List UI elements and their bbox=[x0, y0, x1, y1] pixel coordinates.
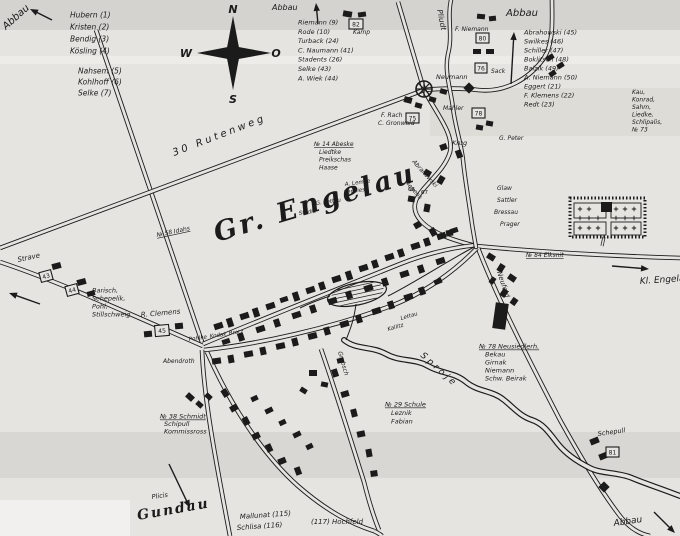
label-66: 66 bbox=[408, 187, 415, 193]
label-117-hochfeld: (117) Hochfeld bbox=[311, 518, 364, 526]
name-list-7-line: Fabian bbox=[391, 418, 413, 426]
building bbox=[408, 195, 416, 202]
name-list-7-line: № 29 Schule bbox=[384, 401, 426, 409]
name-list-2-line: Stadents (26) bbox=[298, 56, 342, 64]
name-list-8-line: Kommissross bbox=[164, 428, 207, 436]
label-krug: Krug bbox=[452, 139, 467, 147]
name-list-2-line: Riemann (9) bbox=[298, 19, 338, 27]
name-list-0-line: Kösling (4) bbox=[70, 47, 110, 56]
name-list-9-line: Liedtke bbox=[319, 149, 341, 156]
label-sack: Sack bbox=[491, 68, 506, 75]
compass-s: S bbox=[229, 93, 237, 106]
name-list-3-line: Boklitsch (48) bbox=[524, 56, 569, 64]
building-number-80: 80 bbox=[479, 35, 487, 42]
name-list-5-line: Pohl, bbox=[92, 303, 108, 311]
label-84-elksnit: № 84 Elksnit bbox=[525, 252, 564, 259]
name-list-4-line: Kau, bbox=[632, 89, 645, 96]
name-list-6-line: Bekau bbox=[485, 351, 505, 359]
building-number-45: 45 bbox=[158, 327, 166, 335]
name-list-5-line: Stillschweig bbox=[92, 311, 130, 319]
name-list-6-line: Schw. Beirak bbox=[485, 375, 527, 383]
label-67: 67 bbox=[421, 190, 428, 196]
name-list-0-line: Bendig (3) bbox=[70, 35, 109, 44]
label-g-peter: G. Peter bbox=[499, 135, 524, 142]
name-list-2-line: A. Wiek (44) bbox=[297, 74, 338, 82]
name-list-5-line: Schepelik, bbox=[92, 295, 125, 303]
label-sattler: Sattler bbox=[497, 197, 518, 204]
label-abbau: Abbau bbox=[505, 8, 538, 19]
name-list-1-line: Nahsem (5) bbox=[78, 67, 122, 76]
map-scan: 828076787543444581NSWOAbbauAbbauAbbauAbb… bbox=[0, 0, 680, 536]
building bbox=[212, 357, 222, 364]
name-list-3-line: Eggert (21) bbox=[524, 83, 561, 91]
name-list-6-line: Niemann bbox=[485, 367, 514, 375]
building bbox=[486, 49, 494, 54]
building bbox=[144, 331, 152, 338]
building bbox=[175, 323, 183, 330]
name-list-9-line: Preikschas bbox=[319, 157, 351, 164]
label-prager: Prager bbox=[500, 221, 520, 228]
name-list-3-line: Balzik (49) bbox=[524, 65, 559, 73]
name-list-3-line: Redt (23) bbox=[524, 101, 555, 109]
cemetery-chapel bbox=[601, 202, 612, 212]
scan-artifact bbox=[0, 500, 130, 536]
name-list-3-line: Swilkes (46) bbox=[524, 38, 564, 46]
label-f-rach: F. Rach bbox=[381, 112, 403, 119]
name-list-4-line: Sahm, bbox=[632, 104, 651, 111]
name-list-5-line: Barisch, bbox=[92, 287, 118, 295]
building-number-82: 82 bbox=[352, 21, 360, 28]
label-glaw: Glaw bbox=[497, 185, 512, 192]
name-list-2-line: Turback (24) bbox=[298, 37, 339, 45]
name-list-4-line: Konrad, bbox=[632, 97, 655, 104]
name-list-3-line: F. Klemens (22) bbox=[524, 92, 574, 100]
name-list-4-line: Liedke, bbox=[632, 112, 654, 119]
name-list-9-line: № 14 Abeske bbox=[313, 141, 354, 148]
compass-o: O bbox=[271, 47, 280, 60]
name-list-0-line: Hubern (1) bbox=[70, 11, 111, 20]
label-abendroth: Abendroth bbox=[162, 358, 195, 365]
building-number-78: 78 bbox=[475, 110, 483, 117]
name-list-2-line: C. Naumann (41) bbox=[298, 46, 354, 54]
name-list-9-line: Haase bbox=[319, 164, 338, 171]
compass-n: N bbox=[228, 3, 237, 16]
label-mahler: Mahler bbox=[443, 105, 464, 112]
name-list-3-line: Schiller (47) bbox=[524, 47, 563, 55]
label-c-gronwald: C. Gronwald bbox=[378, 120, 415, 127]
name-list-6-line: № 78 Neusiedlerh. bbox=[478, 343, 539, 351]
building bbox=[489, 16, 496, 22]
name-list-0-line: Kristen (2) bbox=[70, 23, 109, 32]
name-list-4-line: № 73 bbox=[631, 127, 648, 134]
building-number-76: 76 bbox=[477, 65, 485, 72]
name-list-1-line: Kohlhoff (6) bbox=[78, 78, 122, 87]
label-neumann: Neumann bbox=[436, 73, 468, 81]
name-list-3-line: Abrahowski (45) bbox=[523, 29, 577, 37]
name-list-2-line: Rode (10) bbox=[298, 28, 330, 36]
name-list-2-line: Selke (43) bbox=[298, 65, 331, 73]
label-f-niemann: F. Niemann bbox=[455, 26, 489, 33]
building bbox=[477, 14, 485, 20]
building bbox=[473, 49, 481, 54]
label-bressau: Bressau bbox=[494, 209, 518, 216]
name-list-4-line: Schlipalis, bbox=[632, 119, 662, 126]
name-list-6-line: Girnak bbox=[485, 359, 507, 367]
building bbox=[446, 229, 454, 236]
label-kamp: Kamp bbox=[353, 29, 370, 36]
building-number-81: 81 bbox=[609, 449, 617, 456]
name-list-7-line: Leznik bbox=[391, 409, 412, 417]
name-list-1-line: Selke (7) bbox=[78, 89, 111, 98]
building bbox=[370, 470, 378, 477]
map-canvas: 828076787543444581NSWOAbbauAbbauAbbauAbb… bbox=[0, 0, 680, 536]
compass-w: W bbox=[180, 47, 193, 60]
label-abbau: Abbau bbox=[271, 3, 298, 12]
name-list-3-line: A. Niemann (50) bbox=[523, 74, 577, 82]
building bbox=[309, 370, 317, 376]
